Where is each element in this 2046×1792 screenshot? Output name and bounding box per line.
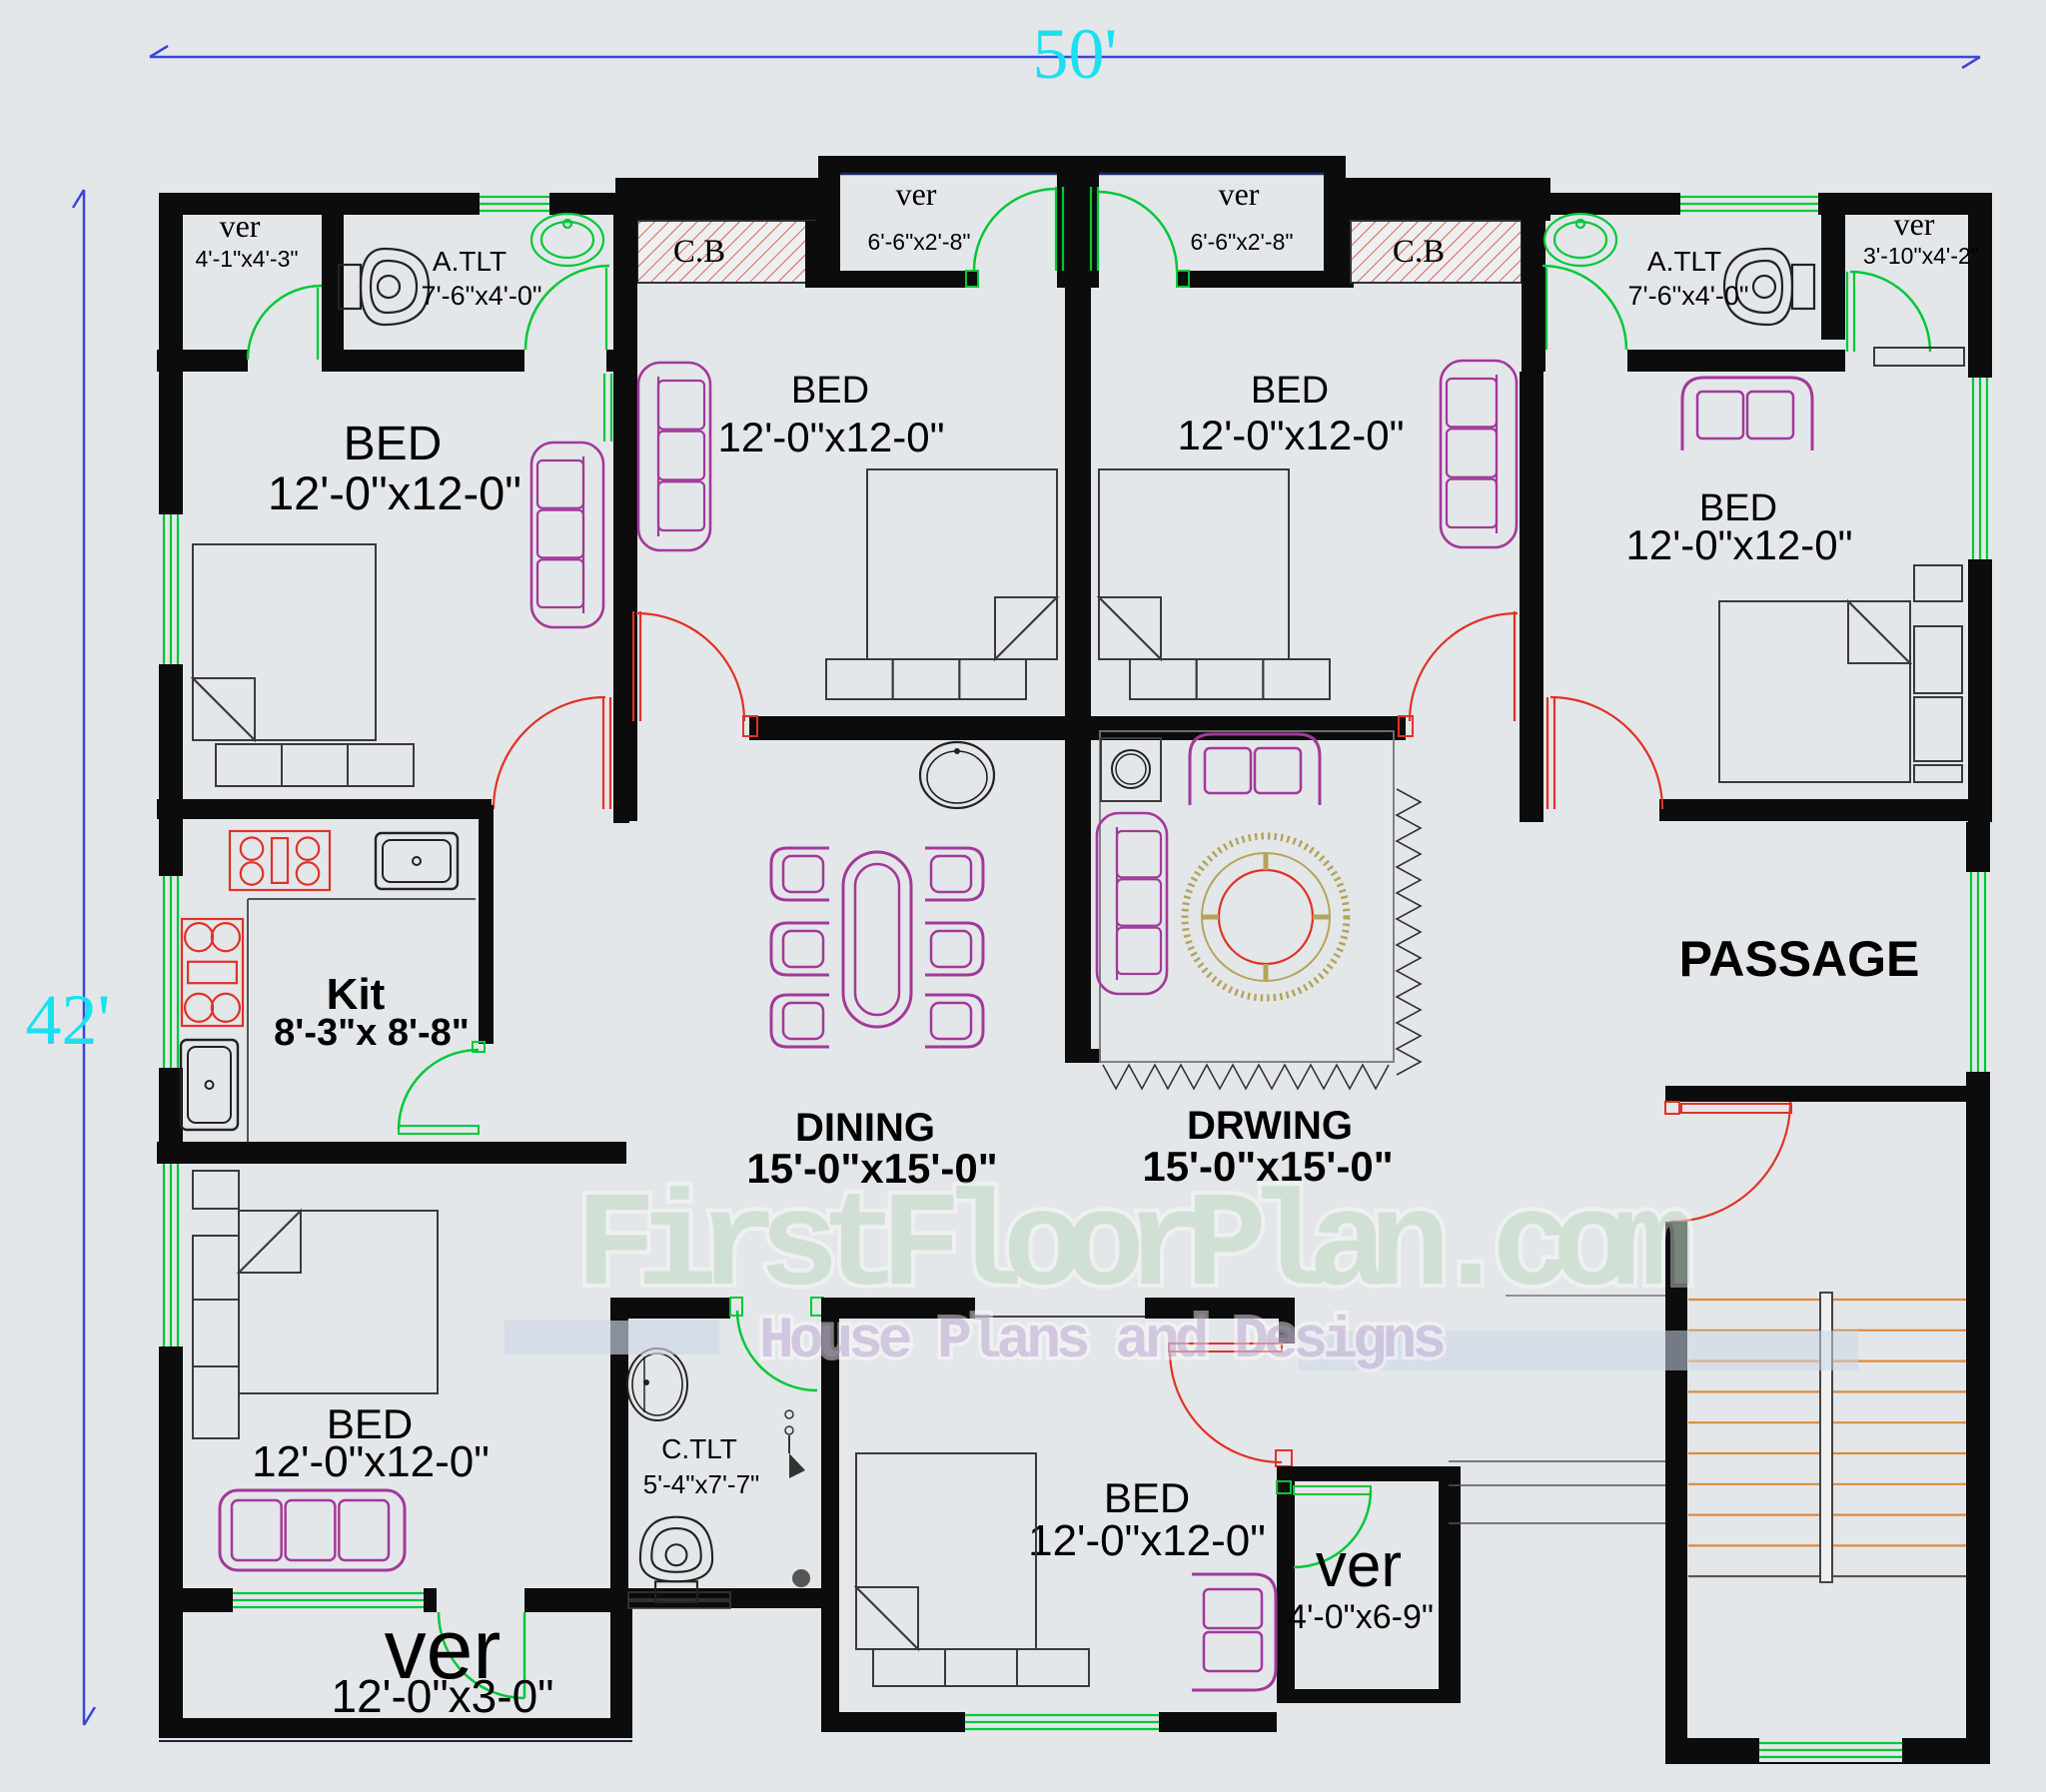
svg-text:A.TLT: A.TLT xyxy=(433,246,507,277)
svg-text:7'-6"x4'-0": 7'-6"x4'-0" xyxy=(1627,281,1748,311)
svg-text:8'-3"x 8'-8": 8'-3"x 8'-8" xyxy=(274,1012,470,1054)
svg-text:C.B: C.B xyxy=(1393,234,1445,270)
svg-text:4'-1"x4'-3": 4'-1"x4'-3" xyxy=(195,246,298,272)
svg-text:FirstFloorPlan.com: FirstFloorPlan.com xyxy=(575,1172,1694,1325)
svg-text:12'-0"x12-0": 12'-0"x12-0" xyxy=(268,466,521,519)
svg-text:12'-0"x12-0": 12'-0"x12-0" xyxy=(1626,521,1853,568)
svg-text:12'-0"x12-0": 12'-0"x12-0" xyxy=(1178,412,1405,458)
svg-text:C.TLT: C.TLT xyxy=(661,1433,737,1464)
svg-text:C.B: C.B xyxy=(673,234,725,270)
svg-text:ver: ver xyxy=(1316,1531,1402,1600)
svg-text:4'-0"x6-9": 4'-0"x6-9" xyxy=(1288,1598,1434,1636)
svg-text:7'-6"x4'-0": 7'-6"x4'-0" xyxy=(421,281,541,311)
svg-text:6'-6"x2'-8": 6'-6"x2'-8" xyxy=(867,229,970,255)
svg-text:ver: ver xyxy=(896,176,937,212)
svg-text:50': 50' xyxy=(1033,14,1118,94)
svg-text:BED: BED xyxy=(344,418,443,470)
svg-text:PASSAGE: PASSAGE xyxy=(1679,931,1920,987)
svg-text:3'-10"x4'-2": 3'-10"x4'-2" xyxy=(1863,243,1979,269)
svg-text:A.TLT: A.TLT xyxy=(1647,246,1721,277)
svg-text:DRWING: DRWING xyxy=(1187,1104,1353,1148)
svg-text:12'-0"x3-0": 12'-0"x3-0" xyxy=(332,1670,554,1722)
svg-text:42': 42' xyxy=(26,980,111,1060)
svg-text:12'-0"x12-0": 12'-0"x12-0" xyxy=(718,414,945,460)
svg-text:12'-0"x12-0": 12'-0"x12-0" xyxy=(1028,1516,1266,1565)
svg-text:12'-0"x12-0": 12'-0"x12-0" xyxy=(252,1437,490,1486)
svg-text:ver: ver xyxy=(1894,206,1935,242)
svg-text:6'-6"x2'-8": 6'-6"x2'-8" xyxy=(1190,229,1293,255)
svg-text:ver: ver xyxy=(1219,176,1260,212)
svg-text:DINING: DINING xyxy=(795,1106,935,1150)
svg-text:BED: BED xyxy=(1251,370,1329,412)
svg-text:ver: ver xyxy=(220,208,261,244)
svg-text:BED: BED xyxy=(791,370,869,412)
svg-text:BED: BED xyxy=(1104,1474,1190,1521)
svg-text:House Plans and Designs: House Plans and Designs xyxy=(759,1310,1447,1374)
svg-text:5'-4"x7'-7": 5'-4"x7'-7" xyxy=(643,1469,760,1499)
